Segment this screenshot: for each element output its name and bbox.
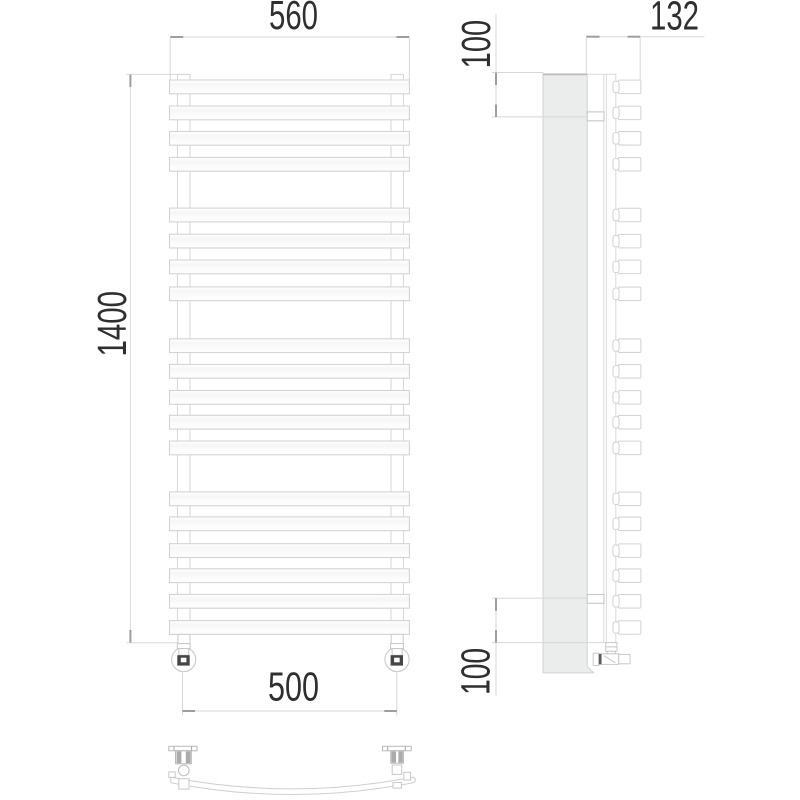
svg-text:100: 100 [453, 20, 499, 69]
svg-text:132: 132 [650, 0, 699, 38]
svg-text:500: 500 [268, 664, 319, 710]
svg-text:560: 560 [269, 0, 318, 38]
svg-text:1400: 1400 [89, 291, 135, 357]
svg-text:100: 100 [453, 648, 499, 695]
